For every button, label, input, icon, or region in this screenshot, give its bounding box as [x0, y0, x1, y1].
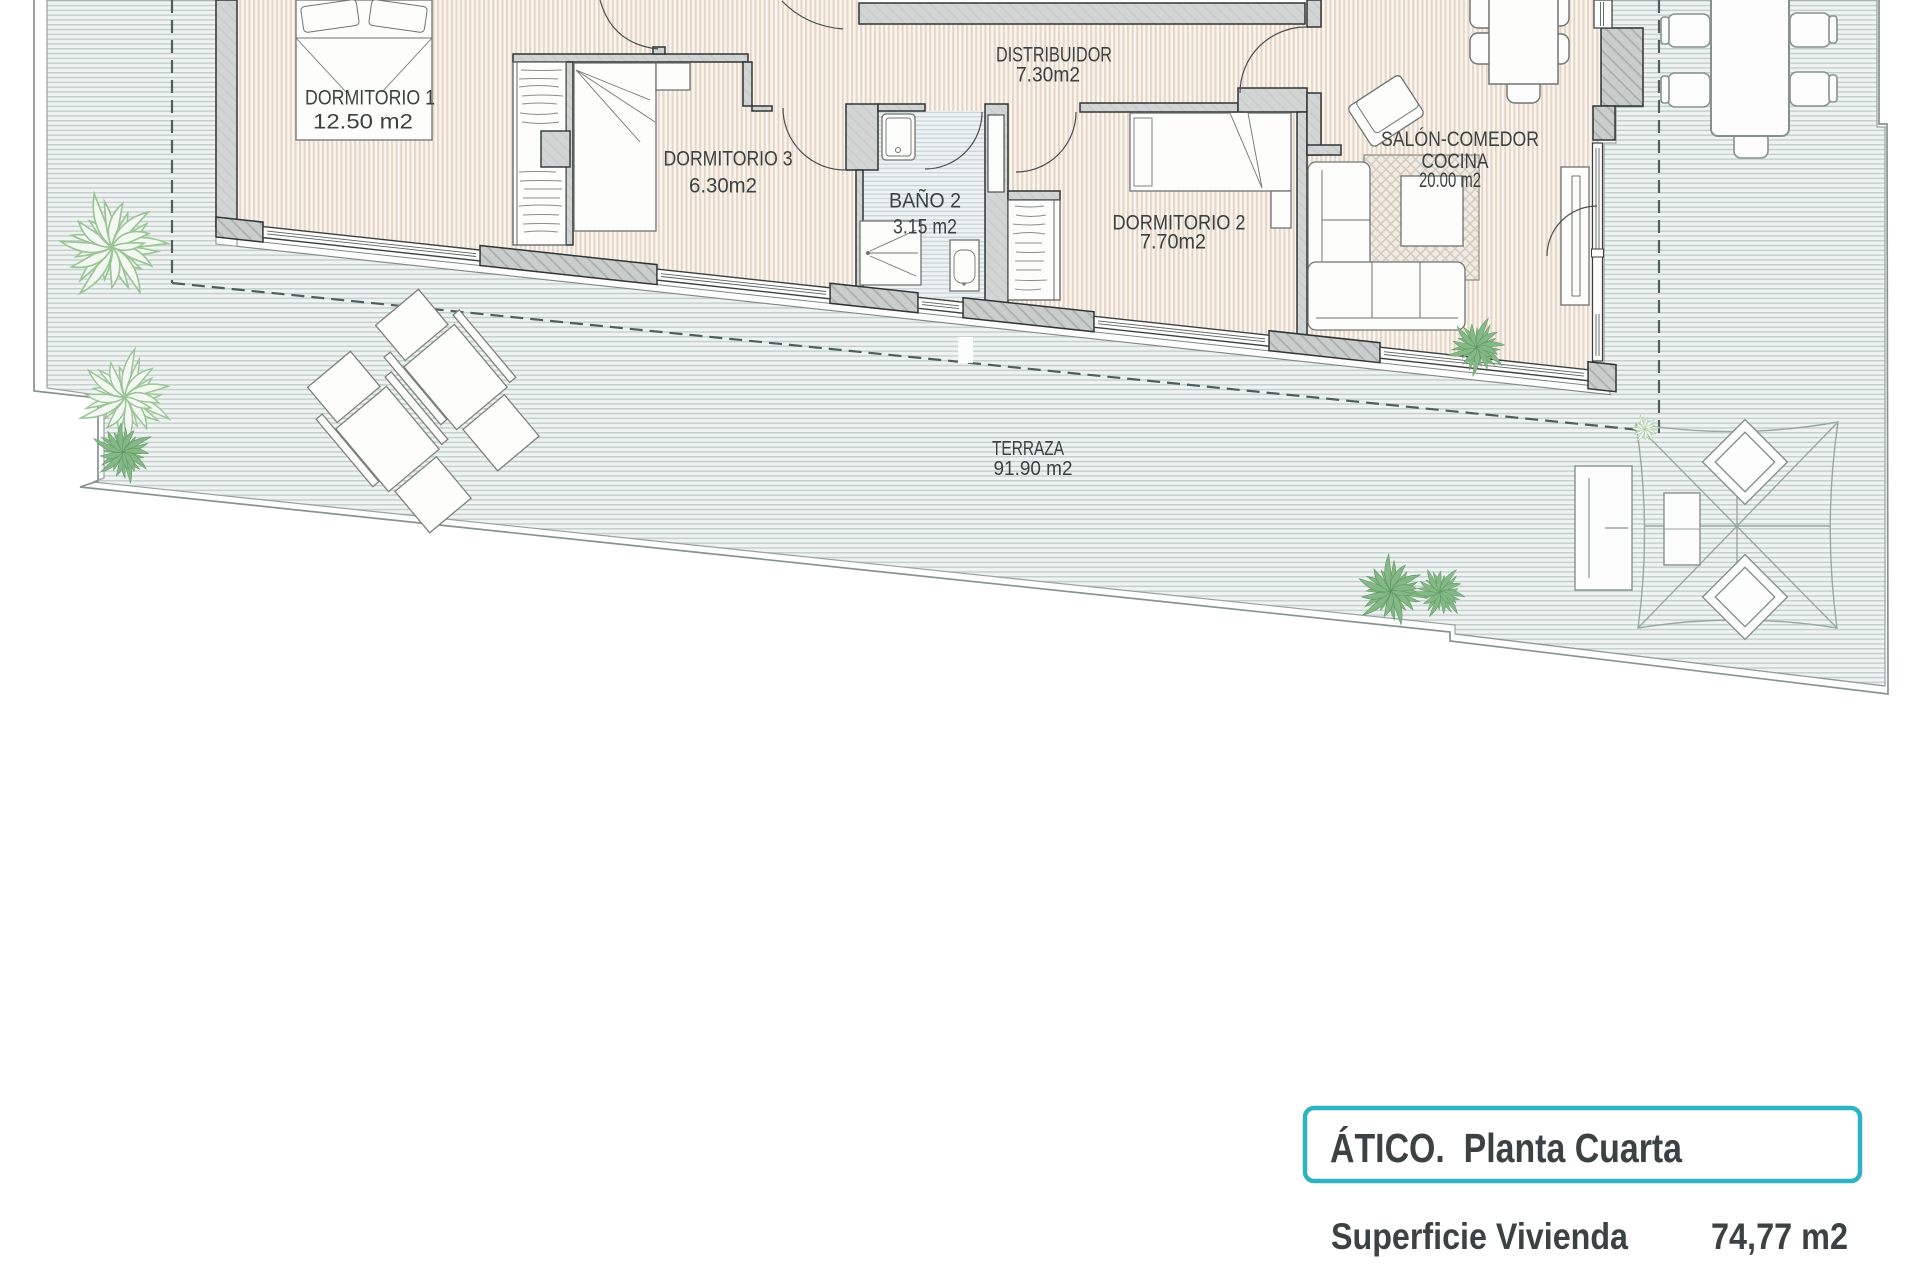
svg-text:DORMITORIO 1: DORMITORIO 1 [305, 87, 435, 110]
svg-text:91.90 m2: 91.90 m2 [994, 458, 1073, 480]
svg-text:BAÑO 2: BAÑO 2 [889, 189, 961, 213]
svg-text:ÁTICO. Planta Cuarta: ÁTICO. Planta Cuarta [1330, 1125, 1683, 1171]
svg-text:74,77 m2: 74,77 m2 [1711, 1216, 1848, 1257]
svg-text:DORMITORIO 3: DORMITORIO 3 [664, 148, 793, 171]
svg-text:SALÓN-COMEDOR: SALÓN-COMEDOR [1381, 128, 1539, 151]
svg-text:TERRAZA: TERRAZA [992, 438, 1065, 460]
svg-text:20.00 m2: 20.00 m2 [1419, 169, 1481, 192]
svg-text:12.50 m2: 12.50 m2 [313, 111, 413, 134]
svg-text:Superficie Vivienda: Superficie Vivienda [1331, 1216, 1628, 1257]
svg-text:6.30m2: 6.30m2 [689, 175, 757, 198]
svg-text:3.15 m2: 3.15 m2 [893, 216, 957, 239]
svg-text:7.30m2: 7.30m2 [1016, 64, 1080, 87]
svg-text:7.70m2: 7.70m2 [1140, 231, 1206, 254]
